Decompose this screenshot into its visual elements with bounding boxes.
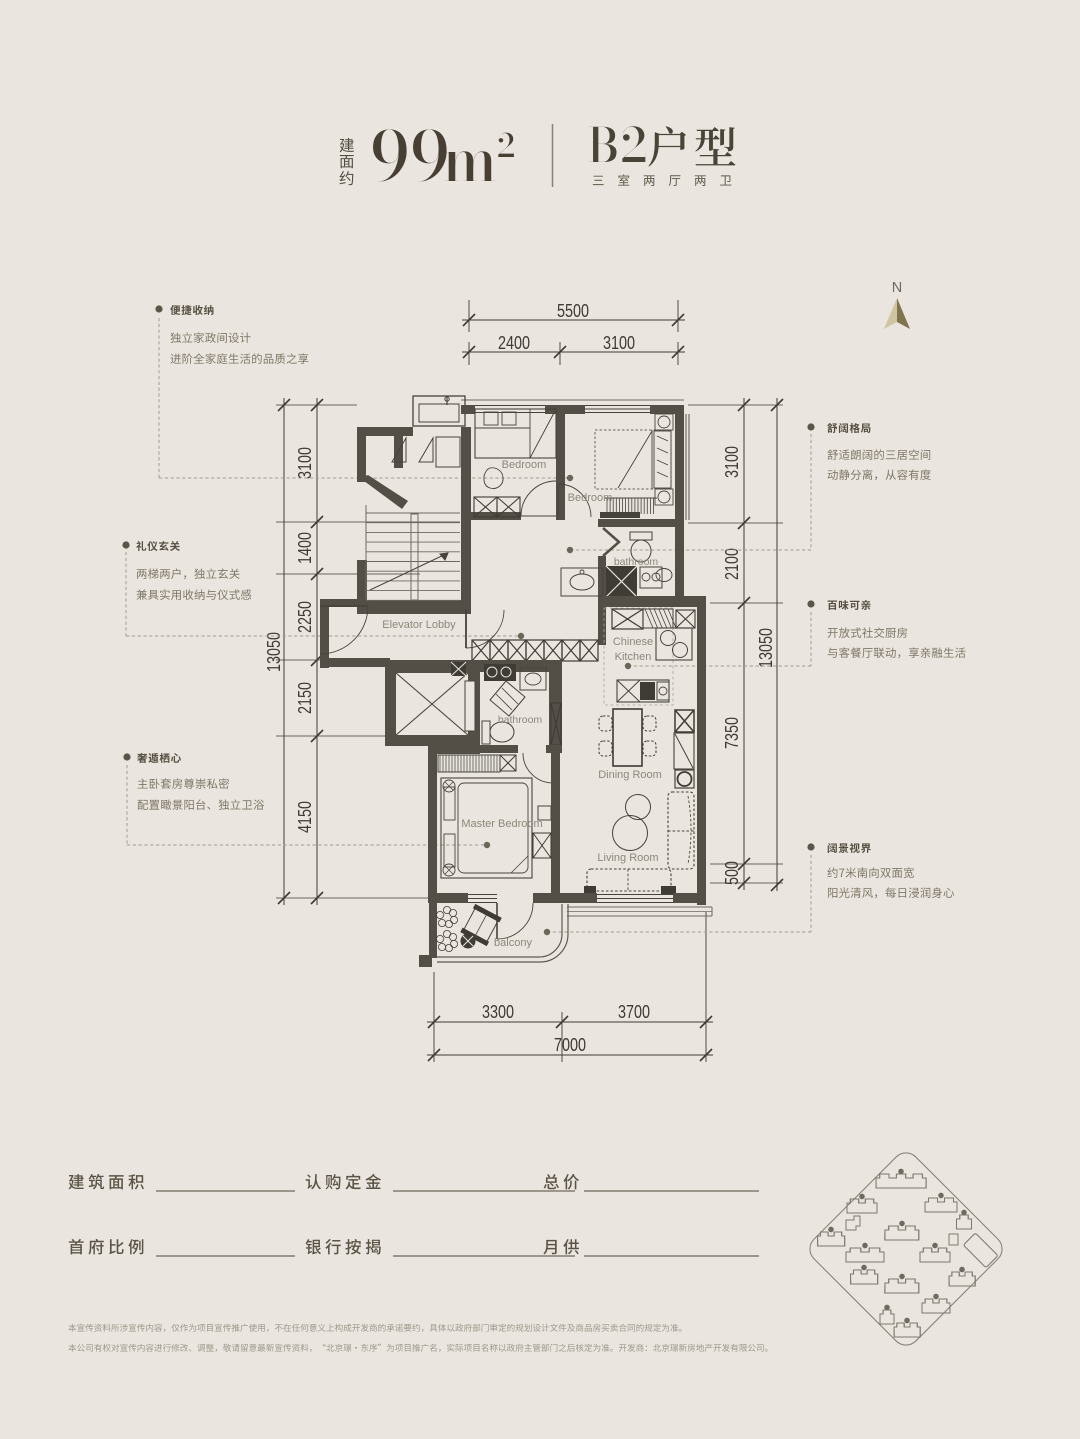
svg-text:7000: 7000	[554, 1034, 586, 1055]
svg-text:1400: 1400	[294, 532, 315, 564]
svg-text:balcony: balcony	[494, 937, 532, 949]
svg-text:2250: 2250	[294, 601, 315, 633]
svg-text:3700: 3700	[618, 1001, 650, 1022]
svg-text:Chinese: Chinese	[613, 636, 653, 648]
svg-text:3300: 3300	[482, 1001, 514, 1022]
svg-text:Bedroom: Bedroom	[502, 459, 547, 471]
svg-text:13050: 13050	[755, 628, 776, 668]
svg-text:3100: 3100	[721, 446, 742, 478]
svg-text:Elevator Lobby: Elevator Lobby	[382, 619, 456, 631]
svg-text:3100: 3100	[294, 447, 315, 479]
svg-text:Kitchen: Kitchen	[615, 651, 652, 663]
svg-text:2400: 2400	[498, 332, 530, 353]
svg-text:500: 500	[721, 861, 742, 885]
svg-text:3100: 3100	[603, 332, 635, 353]
svg-text:7350: 7350	[721, 717, 742, 749]
svg-text:bathroom: bathroom	[614, 556, 659, 568]
svg-text:4150: 4150	[294, 801, 315, 833]
svg-text:Living Room: Living Room	[597, 852, 658, 864]
svg-text:2150: 2150	[294, 682, 315, 714]
svg-text:Dining Room: Dining Room	[598, 769, 662, 781]
svg-text:13050: 13050	[263, 632, 284, 672]
svg-text:Bedroom: Bedroom	[568, 492, 613, 504]
svg-text:bathroom: bathroom	[498, 714, 543, 726]
svg-text:N: N	[892, 280, 902, 296]
svg-text:2100: 2100	[721, 548, 742, 580]
svg-text:Master Bedroom: Master Bedroom	[461, 818, 542, 830]
svg-text:5500: 5500	[557, 300, 589, 321]
